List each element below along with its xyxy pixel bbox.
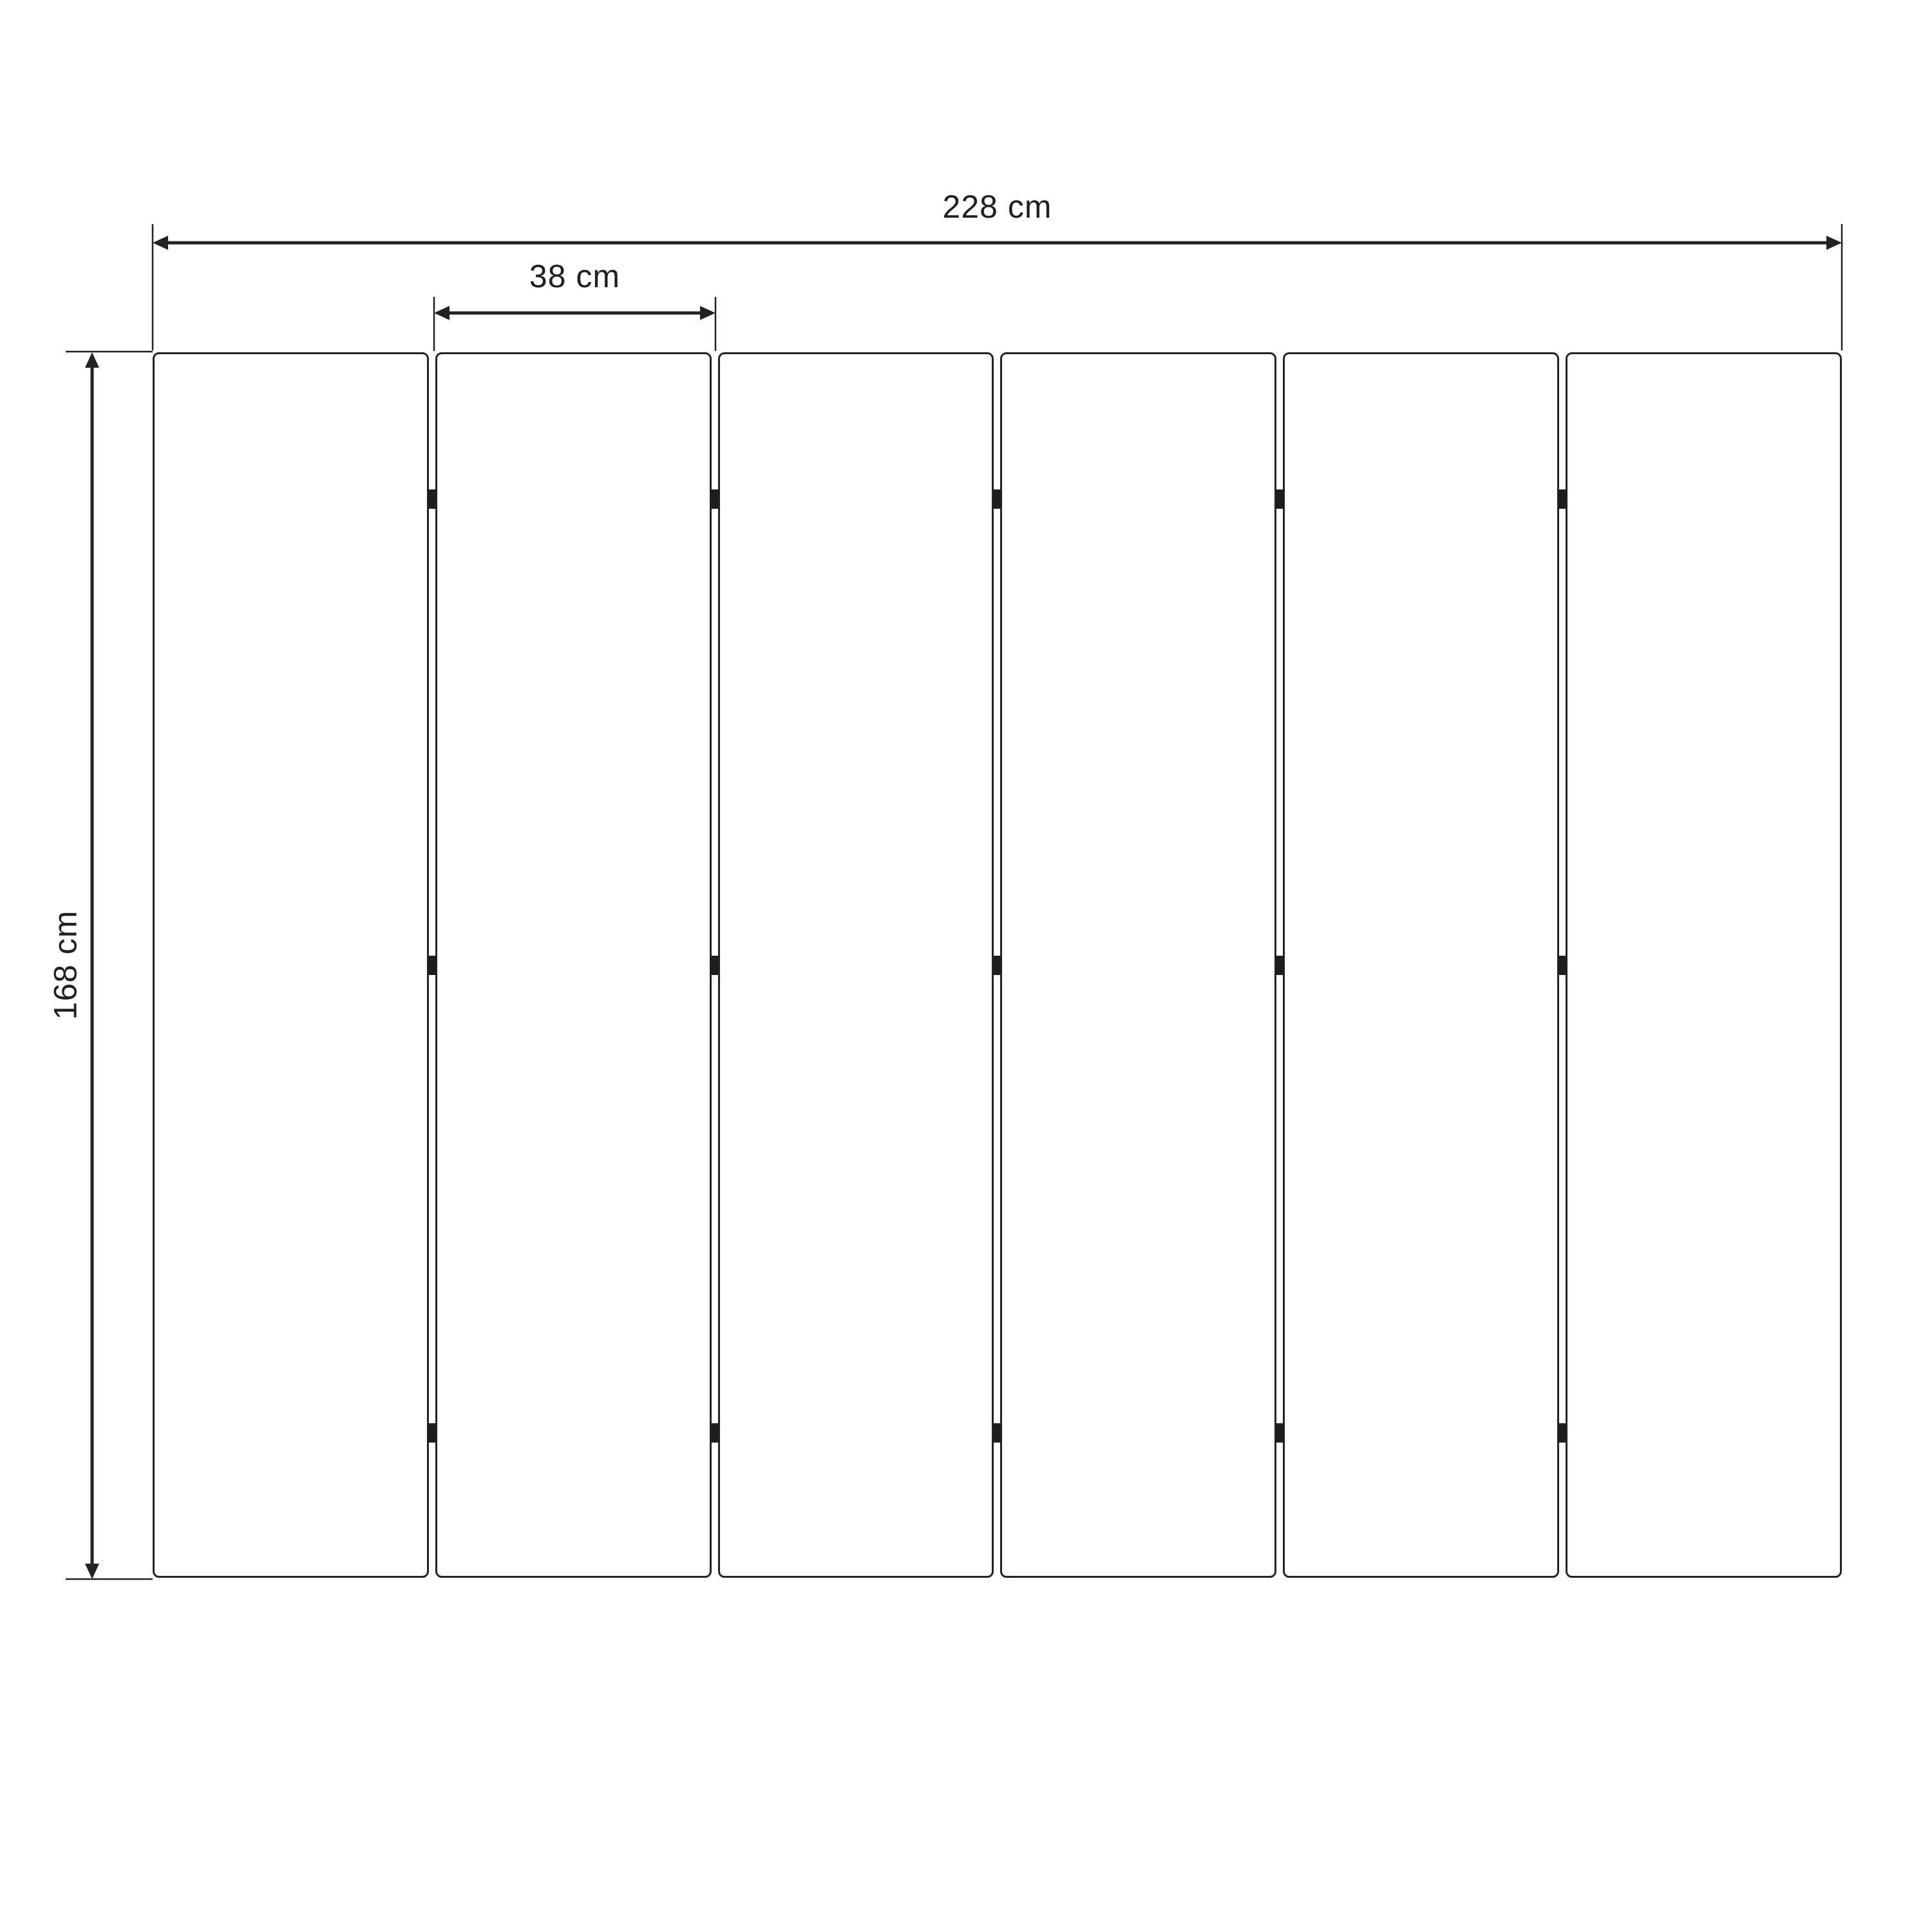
total-width-dimension	[153, 224, 1842, 350]
hinge-mark	[428, 1423, 437, 1443]
hinge-mark	[1275, 489, 1284, 509]
hinge-mark	[993, 489, 1002, 509]
hinge-mark	[428, 956, 437, 975]
panel	[1566, 352, 1842, 1578]
diagram-canvas: 228 cm 38 cm 168 cm	[0, 0, 1932, 1932]
panel-row	[153, 352, 1842, 1578]
hinge-mark	[1275, 956, 1284, 975]
hinge-mark	[1558, 489, 1567, 509]
hinge-mark	[710, 956, 719, 975]
hinge-mark	[1558, 956, 1567, 975]
arrowhead-left-icon	[153, 236, 168, 250]
panel-width-dimension	[434, 297, 715, 351]
hinge-mark	[993, 956, 1002, 975]
panel	[718, 352, 994, 1578]
hinge-mark	[1558, 1423, 1567, 1443]
panel-width-label: 38 cm	[434, 258, 715, 295]
hinge-mark	[1275, 1423, 1284, 1443]
arrowhead-right-icon	[1826, 236, 1842, 250]
arrowhead-down-icon	[85, 1564, 99, 1579]
arrowhead-up-icon	[85, 352, 99, 368]
hinge-mark	[428, 489, 437, 509]
arrowhead-right-icon	[700, 306, 715, 320]
panel	[435, 352, 712, 1578]
hinge-mark	[710, 1423, 719, 1443]
height-label: 168 cm	[48, 910, 84, 1019]
hinge-mark	[710, 489, 719, 509]
panel	[1000, 352, 1276, 1578]
arrowhead-left-icon	[434, 306, 450, 320]
total-width-label: 228 cm	[153, 189, 1842, 225]
panel	[153, 352, 429, 1578]
panel	[1283, 352, 1559, 1578]
hinge-mark	[993, 1423, 1002, 1443]
